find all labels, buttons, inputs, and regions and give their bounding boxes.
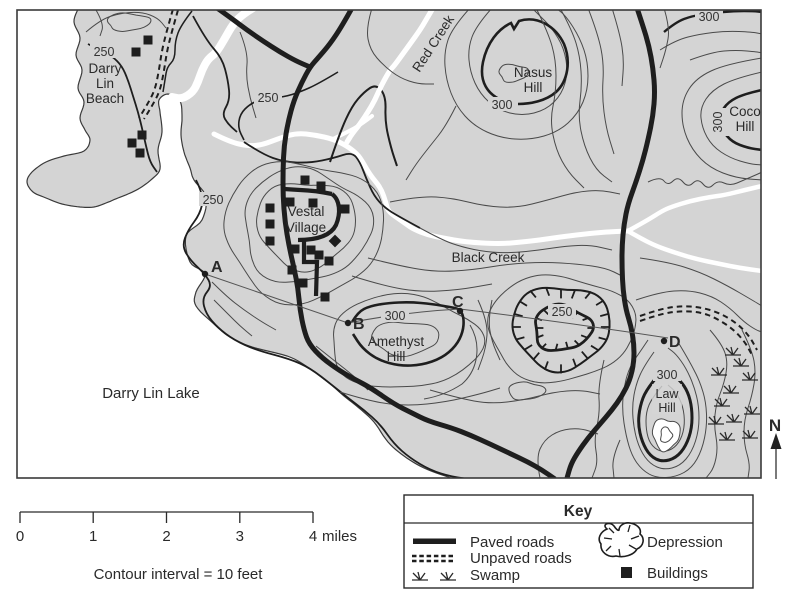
svg-text:C: C — [452, 294, 464, 311]
svg-text:1: 1 — [89, 528, 97, 545]
svg-text:0: 0 — [16, 528, 24, 545]
svg-text:Amethyst: Amethyst — [368, 334, 425, 349]
svg-text:250: 250 — [258, 91, 279, 105]
svg-text:Darry: Darry — [89, 61, 122, 76]
svg-text:300: 300 — [657, 368, 678, 382]
svg-text:Village: Village — [286, 220, 326, 235]
svg-text:miles: miles — [322, 528, 357, 545]
svg-text:3: 3 — [236, 528, 244, 545]
svg-text:Hill: Hill — [658, 401, 675, 415]
svg-text:Key: Key — [564, 503, 593, 520]
svg-text:300: 300 — [385, 309, 406, 323]
svg-text:4: 4 — [309, 528, 317, 545]
svg-text:Law: Law — [656, 387, 680, 401]
svg-text:Hill: Hill — [736, 119, 755, 134]
svg-text:Buildings: Buildings — [647, 565, 708, 582]
svg-text:250: 250 — [94, 45, 115, 59]
svg-text:D: D — [669, 334, 681, 351]
svg-text:B: B — [353, 316, 365, 333]
svg-text:Hill: Hill — [524, 80, 543, 95]
svg-text:N: N — [769, 416, 781, 435]
svg-text:Coco: Coco — [729, 104, 761, 119]
svg-text:Darry Lin Lake: Darry Lin Lake — [102, 385, 200, 402]
svg-text:300: 300 — [492, 98, 513, 112]
svg-text:A: A — [211, 259, 223, 276]
svg-text:Vestal: Vestal — [288, 204, 325, 219]
svg-text:2: 2 — [162, 528, 170, 545]
svg-text:Black Creek: Black Creek — [452, 250, 525, 265]
svg-text:Contour interval = 10 feet: Contour interval = 10 feet — [94, 566, 264, 583]
svg-text:Depression: Depression — [647, 534, 723, 551]
svg-text:Paved roads: Paved roads — [470, 534, 554, 551]
svg-text:Unpaved roads: Unpaved roads — [470, 550, 572, 567]
svg-text:Lin: Lin — [96, 76, 114, 91]
svg-text:Swamp: Swamp — [470, 567, 520, 584]
svg-text:250: 250 — [203, 193, 224, 207]
svg-text:300: 300 — [699, 10, 720, 24]
svg-text:Beach: Beach — [86, 91, 124, 106]
svg-text:300: 300 — [711, 112, 725, 133]
svg-text:Hill: Hill — [387, 349, 406, 364]
svg-text:Nasus: Nasus — [514, 65, 553, 80]
svg-text:250: 250 — [552, 305, 573, 319]
